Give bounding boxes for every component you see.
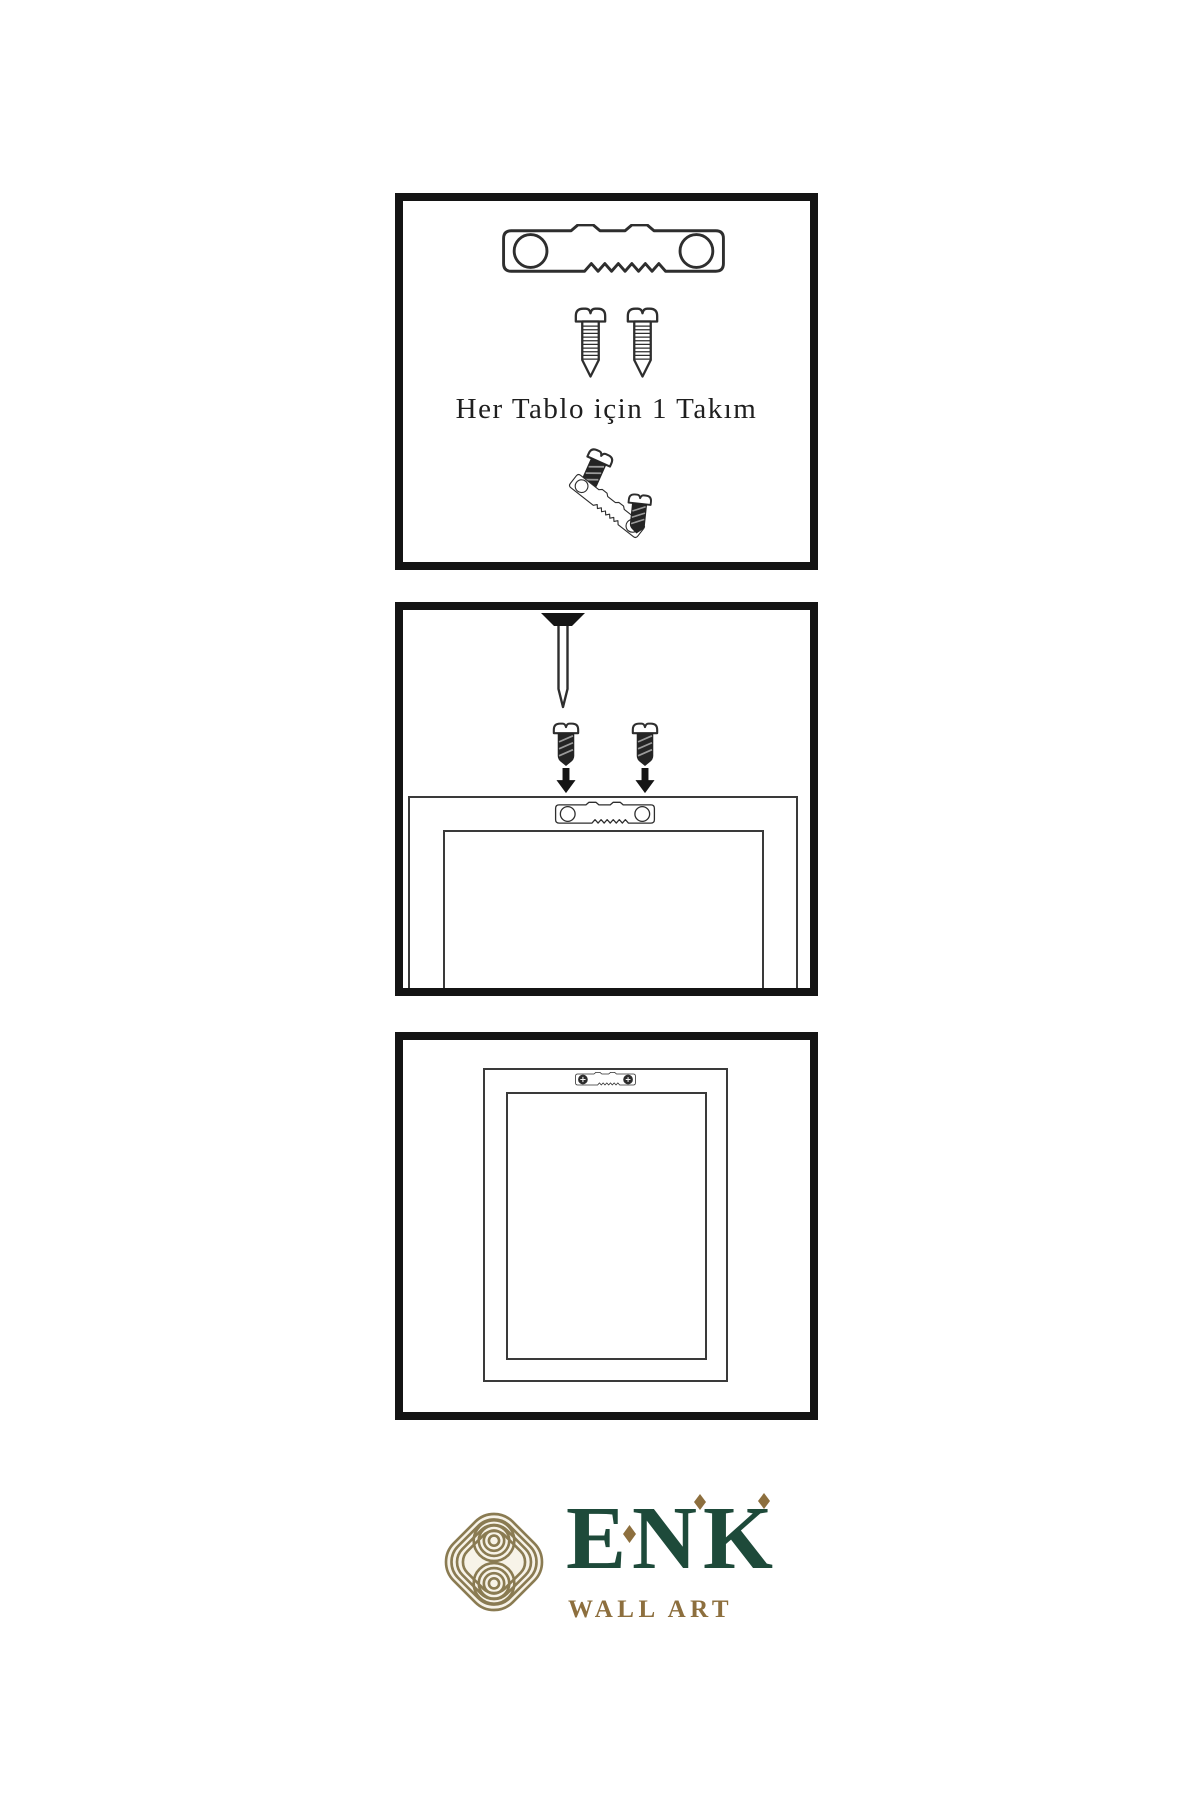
panel-wall-mounting (395, 602, 818, 996)
panel-mounted-frame (395, 1032, 818, 1420)
arrow-down-icon (555, 768, 577, 794)
brand-wordmark: ENK WALL ART (566, 1492, 796, 1652)
sawtooth-hanger-icon (553, 801, 657, 827)
hanger-screw-assembly-icon (563, 448, 683, 568)
arrow-down-icon (634, 768, 656, 794)
screw-icon (572, 305, 609, 382)
screw-icon (630, 721, 660, 768)
brand-name: ENK (566, 1494, 779, 1584)
frame-back-inner (443, 830, 764, 996)
installed-hanger-icon (574, 1071, 637, 1088)
brand-logo: ENK WALL ART (433, 1492, 793, 1652)
screw-icon (623, 491, 654, 538)
frame-back-inner (506, 1092, 707, 1360)
sawtooth-hanger-icon (497, 224, 730, 278)
wall-nail-icon (540, 610, 586, 716)
screw-icon (624, 305, 661, 382)
brand-tagline: WALL ART (568, 1596, 733, 1624)
kit-caption: Her Tablo için 1 Takım (403, 393, 810, 426)
screw-icon (551, 721, 581, 768)
panel-hardware-kit: Her Tablo için 1 Takım (395, 193, 818, 570)
hanging-instructions-sheet: Her Tablo için 1 Takım ENK WALL ART (0, 0, 1200, 1800)
knot-emblem-icon (433, 1492, 555, 1632)
